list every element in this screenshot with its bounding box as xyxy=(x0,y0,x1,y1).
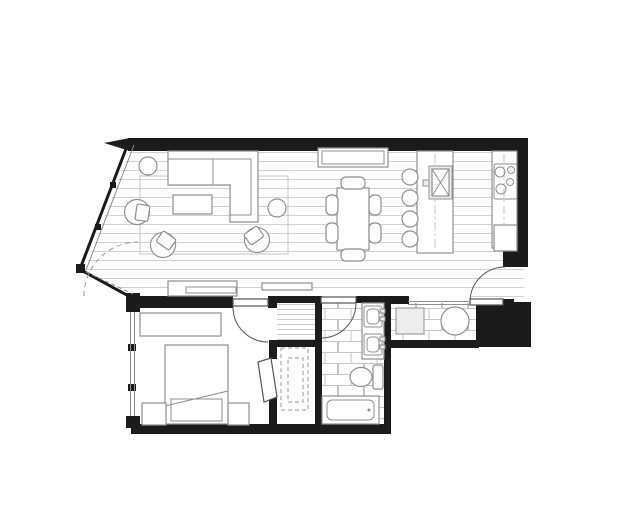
floor-plan-canvas xyxy=(0,0,628,506)
closet-door-ajar xyxy=(258,358,277,402)
refrigerator-cabinet xyxy=(494,225,517,251)
wall-bathroom-west xyxy=(315,296,322,424)
wall-laundry-west-stub xyxy=(384,296,409,304)
faucet-lower-2 xyxy=(380,345,385,349)
bar-stool-3 xyxy=(402,211,418,227)
round-side-table-right xyxy=(268,199,286,217)
bar-stool-4 xyxy=(402,231,418,247)
floor-plan-drawing xyxy=(0,0,628,506)
bedroom-door-arc xyxy=(233,307,268,342)
wall-laundry-south xyxy=(384,340,479,348)
closet-shelf-outer xyxy=(281,348,308,410)
wall-closet-north xyxy=(269,340,315,347)
wall-bedroom-sw-post xyxy=(126,416,140,428)
wall-south xyxy=(131,424,391,434)
nightstand-right xyxy=(228,403,249,425)
media-console xyxy=(168,281,237,296)
bedroom-door-leaf xyxy=(233,299,268,306)
faucet-upper-1 xyxy=(380,309,385,313)
dining-chair-bottom xyxy=(341,249,365,261)
dining-chair-right-1 xyxy=(369,195,381,215)
toilet-bowl xyxy=(350,368,372,387)
toilet xyxy=(350,365,383,389)
toilet-tank xyxy=(373,365,383,389)
dining-chair-left-2 xyxy=(326,223,338,243)
structural-shaft xyxy=(476,302,531,347)
dining-table xyxy=(337,188,369,250)
dining-chair-top xyxy=(341,177,365,189)
coffee-table xyxy=(173,195,212,214)
closet-shelf-inner xyxy=(288,358,303,402)
dresser xyxy=(140,313,221,336)
bathroom-door-leaf xyxy=(321,297,356,303)
wall-bathroom-north xyxy=(356,296,384,303)
faucet-lower-1 xyxy=(380,337,385,341)
nightstand-left xyxy=(142,403,166,425)
wall-bathroom-east xyxy=(384,296,391,424)
wall-bedroom-north xyxy=(131,296,233,308)
wall-shelf xyxy=(262,283,312,290)
bar-stool-1 xyxy=(402,169,418,185)
wall-nook-north xyxy=(277,296,321,303)
bathtub xyxy=(322,396,379,424)
dining-chair-left-1 xyxy=(326,195,338,215)
bar-stool-2 xyxy=(402,190,418,206)
tub-drain xyxy=(368,409,371,412)
island-faucet xyxy=(423,180,429,186)
bedroom-furniture xyxy=(140,313,249,425)
tile-floor-hall-nook xyxy=(277,303,315,340)
entry-door-leaf xyxy=(470,299,503,305)
wall-east xyxy=(517,138,528,248)
washer xyxy=(396,308,424,334)
wall-bedroom-door-stub xyxy=(268,296,277,308)
dryer xyxy=(441,307,469,335)
closet-shelving xyxy=(281,348,308,410)
round-side-table-left xyxy=(139,157,157,175)
wall-closet-west-upper xyxy=(269,347,277,359)
faucet-upper-2 xyxy=(380,317,385,321)
bed xyxy=(165,345,228,424)
dining-chair-right-2 xyxy=(369,223,381,243)
